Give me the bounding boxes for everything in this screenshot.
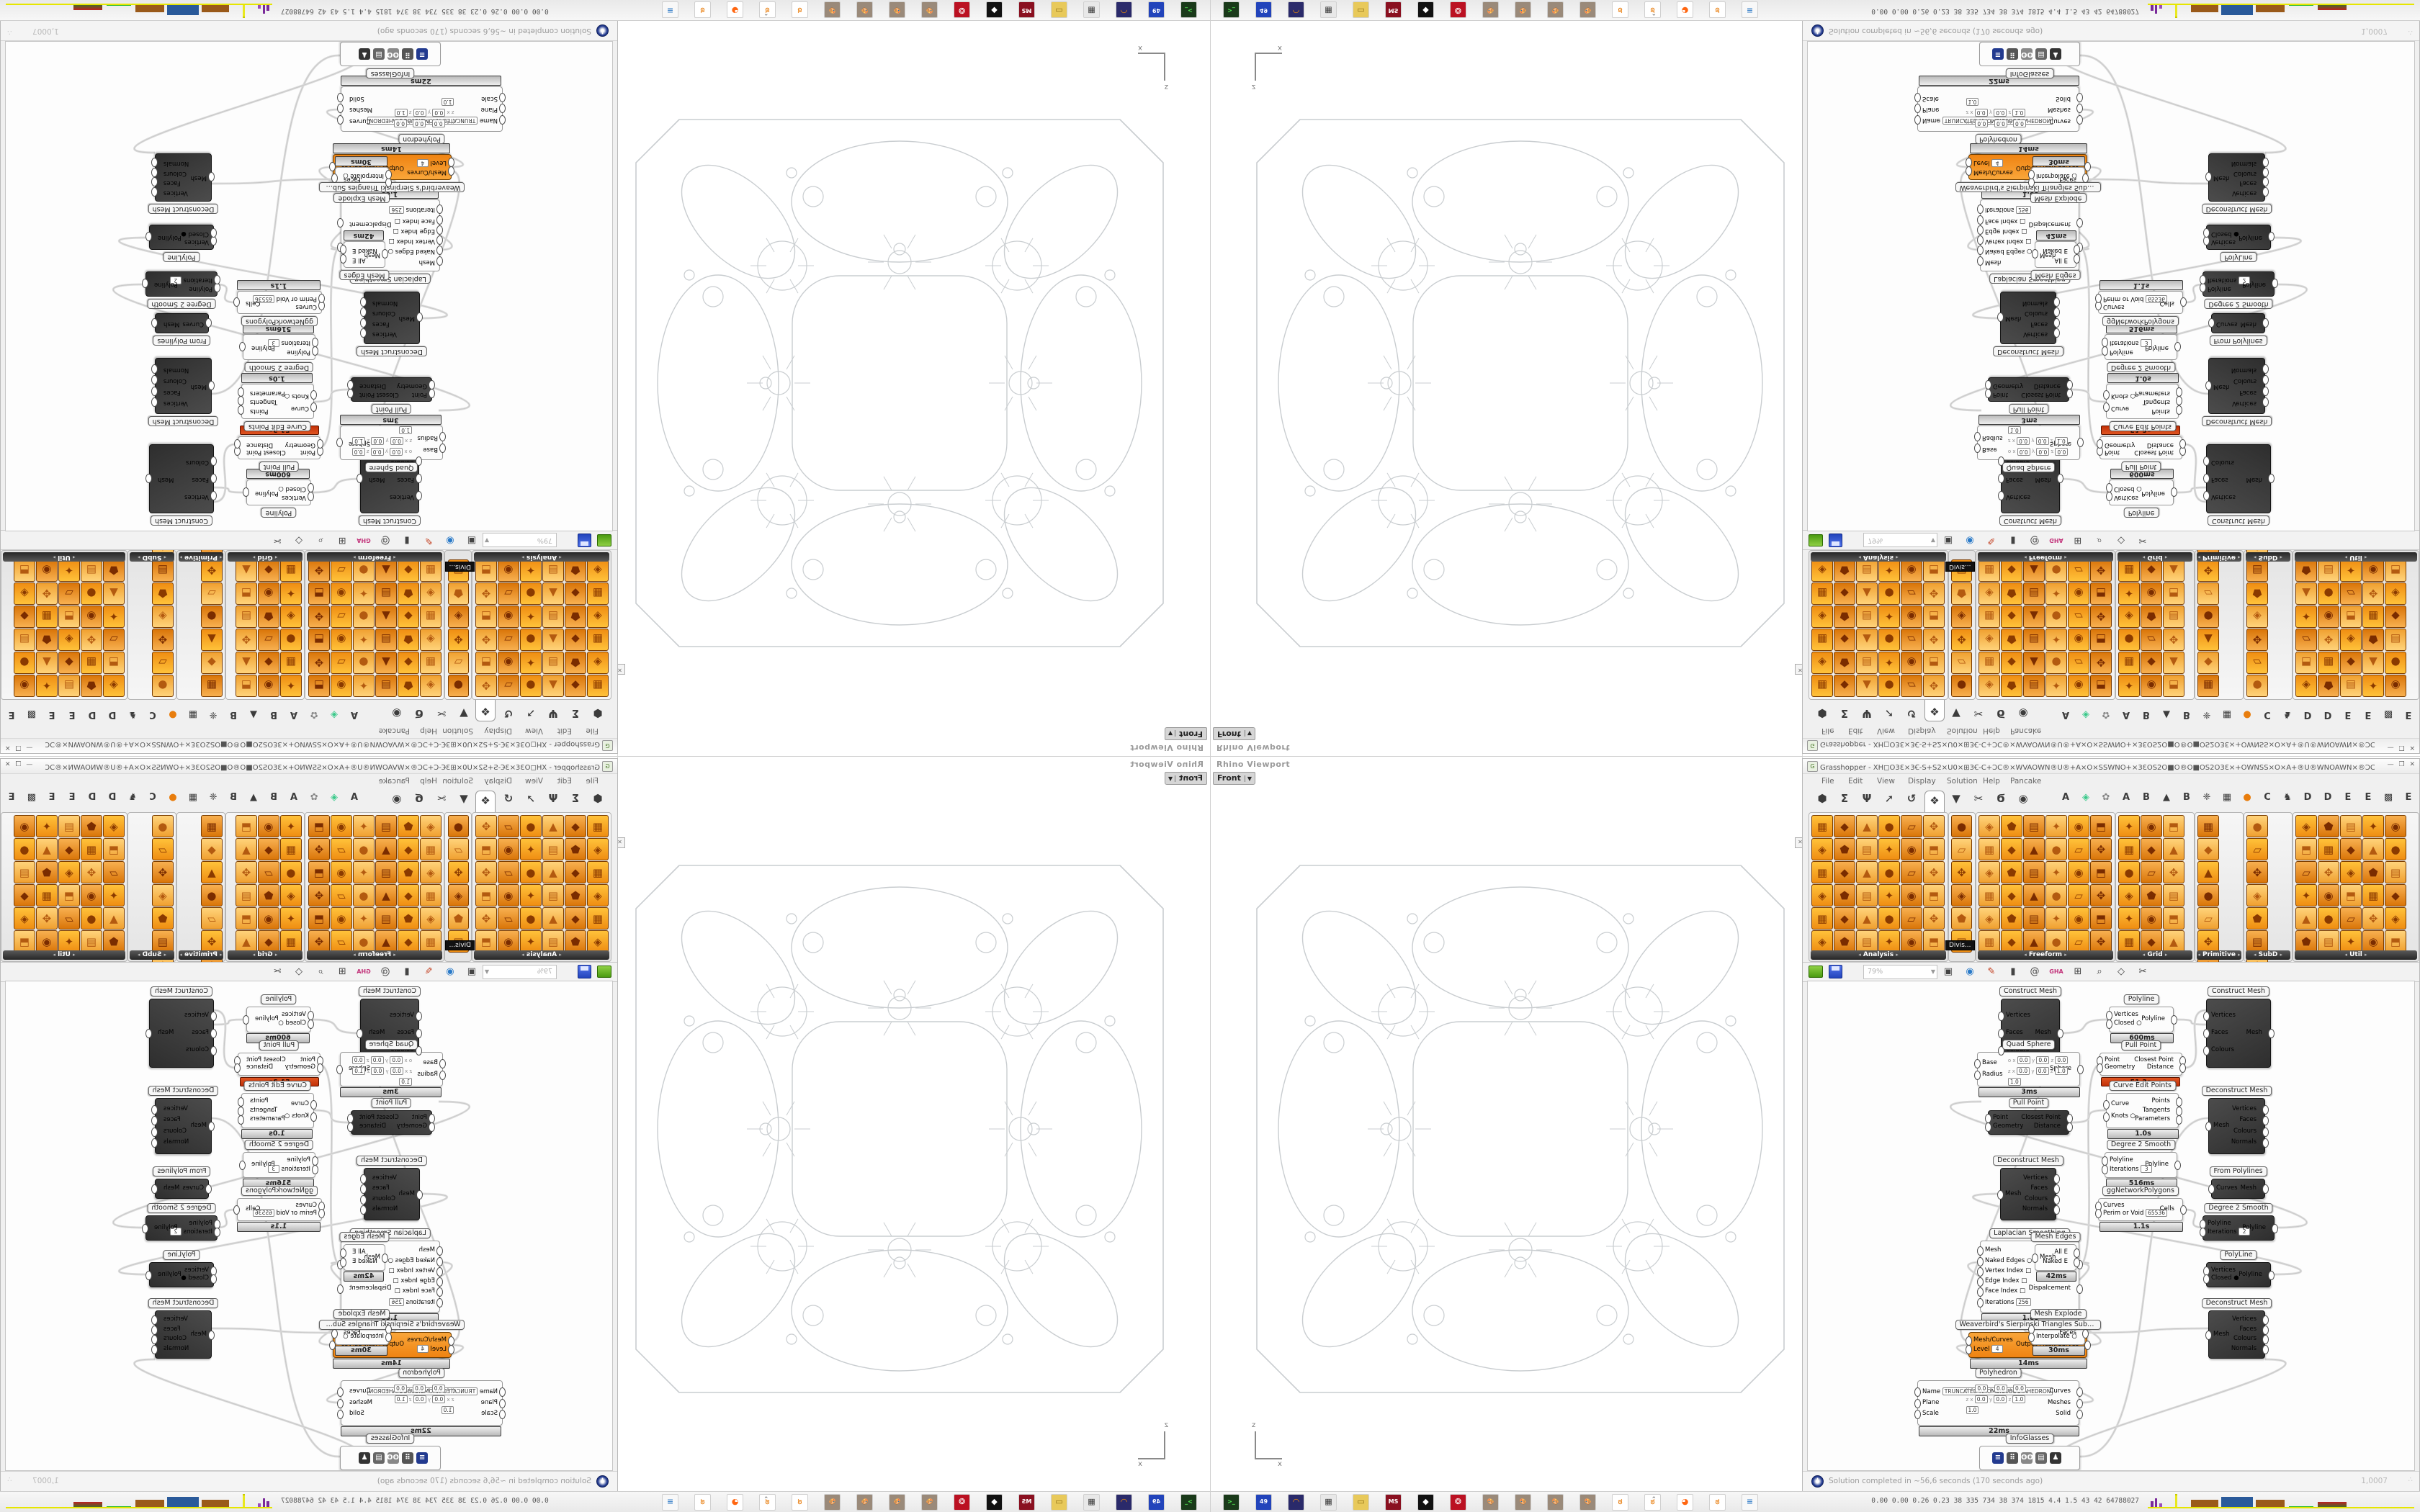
palette-component-icon[interactable]: ◉ xyxy=(2068,629,2089,651)
palette-component-icon[interactable]: ▲ xyxy=(375,606,397,628)
palette-component-icon[interactable]: ⬟ xyxy=(2318,675,2339,697)
menu-item-edit[interactable]: Edit xyxy=(557,777,572,786)
palette-component-icon[interactable]: ◆ xyxy=(565,629,586,651)
palette-component-icon[interactable]: ✥ xyxy=(1923,582,1945,605)
palette-component-icon[interactable]: ▲ xyxy=(201,629,223,651)
palette-component-icon[interactable]: ▦ xyxy=(2318,652,2339,674)
palette-label-primitive[interactable]: ◂ Primitive ▸ xyxy=(2197,950,2241,960)
value-box[interactable]: 0.0 xyxy=(352,448,365,456)
gh-plugin-tab-7[interactable]: ❈ xyxy=(204,792,223,803)
viewport-tab-front[interactable]: Front▼ xyxy=(1165,727,1207,740)
palette-component-icon[interactable]: ◆ xyxy=(2001,884,2022,906)
palette-component-icon[interactable]: ◆ xyxy=(1834,675,1855,697)
palette-component-icon[interactable]: ✥ xyxy=(2090,606,2112,628)
gh-plugin-tab-9[interactable]: ● xyxy=(163,709,182,720)
palette-component-icon[interactable]: ▤ xyxy=(375,675,397,697)
input-port[interactable] xyxy=(312,338,318,347)
infoglasses-icon[interactable]: ≡ xyxy=(1992,48,2004,60)
palette-component-icon[interactable]: ◉ xyxy=(2068,861,2089,883)
gh-plugin-tab-11[interactable]: ♞ xyxy=(2278,709,2297,720)
palette-component-icon[interactable]: ◆ xyxy=(565,861,586,883)
toolbar-icon-0[interactable]: ▣ xyxy=(1941,533,1955,547)
gh-plugin-tab-9[interactable]: ● xyxy=(163,792,182,803)
palette-component-icon[interactable]: ◉ xyxy=(2362,559,2384,582)
input-port[interactable] xyxy=(436,1298,443,1308)
palette-component-icon[interactable]: ✦ xyxy=(1878,838,1900,860)
palette-component-icon[interactable]: ◉ xyxy=(2141,907,2162,930)
palette-component-icon[interactable]: ▱ xyxy=(498,815,519,837)
palette-component-icon[interactable]: ◆ xyxy=(2001,930,2022,953)
canvas-zoom-box[interactable]: 79%▼ xyxy=(1863,533,1937,547)
input-port[interactable] xyxy=(210,491,217,500)
palette-component-icon[interactable]: ✥ xyxy=(2362,907,2384,930)
input-port[interactable] xyxy=(205,318,212,328)
palette-component-icon[interactable]: ● xyxy=(1878,907,1900,930)
gh-main-tab-7[interactable]: ✂ xyxy=(1969,792,1988,805)
palette-component-icon[interactable]: ● xyxy=(353,838,375,860)
input-port[interactable] xyxy=(1998,1029,2004,1038)
palette-component-icon[interactable]: ✥ xyxy=(475,907,497,930)
palette-component-icon[interactable]: ▲ xyxy=(542,815,564,837)
value-box[interactable]: 0.0 xyxy=(2017,1056,2030,1064)
palette-component-icon[interactable]: ⬟ xyxy=(398,861,419,883)
taskbar-icon-blender[interactable]: ಠ xyxy=(694,1,711,18)
palette-component-icon[interactable]: ▲ xyxy=(1856,815,1878,837)
palette-component-icon[interactable]: ✥ xyxy=(448,861,469,883)
palette-component-icon[interactable]: ▱ xyxy=(2246,838,2268,860)
palette-component-icon[interactable]: ✥ xyxy=(152,629,174,651)
palette-component-icon[interactable]: ▦ xyxy=(587,815,609,837)
palette-component-icon[interactable]: ✦ xyxy=(520,838,542,860)
infoglasses-icon[interactable]: ▤ xyxy=(2035,1452,2047,1464)
palette-component-icon[interactable]: ✥ xyxy=(475,675,497,697)
palette-component-icon[interactable]: ▱ xyxy=(2068,652,2089,674)
palette-component-icon[interactable]: ▱ xyxy=(498,629,519,651)
output-port[interactable] xyxy=(2082,1329,2089,1338)
value-box[interactable]: 0.0 xyxy=(432,120,445,127)
palette-component-icon[interactable]: ✦ xyxy=(2118,675,2140,697)
palette-component-icon[interactable]: ◉ xyxy=(2068,582,2089,605)
input-port[interactable] xyxy=(1966,166,1972,176)
palette-component-icon[interactable]: ⬒ xyxy=(475,652,497,674)
gh-plugin-tab-16[interactable]: ▩ xyxy=(22,792,41,803)
palette-component-icon[interactable]: ▦ xyxy=(2118,930,2140,953)
toolbar-icon-8[interactable]: ◇ xyxy=(2114,965,2128,979)
rhino-viewport[interactable]: Rhino Viewport Front▼ z x xyxy=(1210,20,1803,756)
input-port[interactable] xyxy=(208,1122,215,1131)
palette-component-icon[interactable]: ▦ xyxy=(587,629,609,651)
taskbar-icon-floppy-49[interactable]: 49 xyxy=(1255,1494,1272,1511)
output-port[interactable] xyxy=(337,93,344,102)
zoom-dropdown-icon[interactable]: ▼ xyxy=(485,966,489,978)
infoglasses-icon[interactable]: ⠿ xyxy=(2007,48,2018,60)
palette-component-icon[interactable]: ◈ xyxy=(420,675,442,697)
palette-component-icon[interactable]: ▱ xyxy=(1901,629,1922,651)
palette-component-icon[interactable]: ◆ xyxy=(2385,606,2406,628)
grasshopper-title-bar[interactable]: G Grasshopper - XH◻O3Ɛ×3Ꞓ-S+S2×U0×⊞3Ꞓ-C+… xyxy=(1803,738,2419,753)
palette-component-icon[interactable]: ▱ xyxy=(331,930,352,953)
taskbar-icon-terminal[interactable]: >_ xyxy=(1180,1,1197,18)
toolbar-icon-4[interactable]: @ xyxy=(378,533,393,547)
palette-component-icon[interactable]: ▱ xyxy=(1951,838,1972,860)
palette-component-icon[interactable]: ◈ xyxy=(280,884,302,906)
palette-component-icon[interactable]: ◆ xyxy=(1834,907,1855,930)
palette-component-icon[interactable]: ◈ xyxy=(14,907,35,930)
taskbar-icon-floppy-49[interactable]: 49 xyxy=(1148,1,1165,18)
palette-component-icon[interactable]: ▲ xyxy=(2197,629,2219,651)
input-port[interactable] xyxy=(1997,1190,2004,1200)
palette-component-icon[interactable]: ⬒ xyxy=(2340,884,2362,906)
gh-plugin-tab-3[interactable]: A xyxy=(284,709,303,720)
canvas-zoom-box[interactable]: 79%▼ xyxy=(483,965,557,979)
palette-component-icon[interactable]: ◆ xyxy=(2340,838,2362,860)
taskbar-icon-firefox[interactable]: ◕ xyxy=(727,1494,743,1511)
palette-component-icon[interactable]: ▤ xyxy=(375,582,397,605)
taskbar-icon-gimp[interactable]: 🎨 xyxy=(1482,1494,1499,1511)
value-box[interactable]: 0.0 xyxy=(432,1385,445,1392)
value-box[interactable]: 1.0 xyxy=(1966,98,1979,106)
palette-component-icon[interactable]: ⬒ xyxy=(236,582,257,605)
toolbar-icon-2[interactable]: ✎ xyxy=(1984,965,1999,979)
palette-component-icon[interactable]: ◆ xyxy=(398,652,419,674)
input-port[interactable] xyxy=(2203,1029,2210,1038)
palette-component-icon[interactable]: ⬟ xyxy=(448,907,469,930)
gh-main-tab-9[interactable]: ◉ xyxy=(387,792,406,805)
output-port[interactable] xyxy=(145,1271,152,1280)
input-port[interactable] xyxy=(416,1029,422,1038)
palette-component-icon[interactable]: ▤ xyxy=(236,606,257,628)
palette-component-icon[interactable]: ▲ xyxy=(201,861,223,883)
zoom-dropdown-icon[interactable]: ▼ xyxy=(485,534,489,546)
gh-main-tab-9[interactable]: ◉ xyxy=(2014,707,2033,720)
input-port[interactable] xyxy=(1985,389,1991,398)
palette-component-icon[interactable]: ▱ xyxy=(1901,675,1922,697)
palette-component-icon[interactable]: ▲ xyxy=(375,559,397,582)
palette-component-icon[interactable]: ◆ xyxy=(398,884,419,906)
palette-component-icon[interactable]: ▤ xyxy=(2340,815,2362,837)
gh-plugin-tab-14[interactable]: E xyxy=(63,792,81,803)
gh-plugin-tab-3[interactable]: A xyxy=(284,792,303,803)
output-port[interactable] xyxy=(2076,1284,2083,1294)
palette-component-icon[interactable]: ✥ xyxy=(81,629,102,651)
palette-component-icon[interactable]: ▲ xyxy=(1856,907,1878,930)
palette-label-analysis[interactable]: ◂ Analysis ▸ xyxy=(474,552,609,562)
palette-component-icon[interactable]: ✥ xyxy=(201,559,223,582)
gh-plugin-tab-5[interactable]: ▲ xyxy=(2157,709,2176,720)
taskbar-icon-folder[interactable]: ▭ xyxy=(1051,1,1067,18)
taskbar-icon-gimp[interactable]: 🎨 xyxy=(889,1,905,18)
output-port[interactable] xyxy=(2176,405,2182,415)
taskbar-icon-inkscape[interactable]: ◆ xyxy=(1417,1494,1434,1511)
gh-plugin-tab-1[interactable]: ◈ xyxy=(2076,709,2095,720)
menu-item-pancake[interactable]: Pancake xyxy=(2010,726,2041,735)
palette-component-icon[interactable]: ▦ xyxy=(2118,652,2140,674)
input-port[interactable] xyxy=(429,389,435,398)
taskbar-icon-darktable[interactable]: ❂ xyxy=(1450,1494,1466,1511)
viewport-tab-dropdown-icon[interactable]: ▼ xyxy=(1245,775,1252,782)
menu-item-pancake[interactable]: Pancake xyxy=(379,726,410,735)
input-port[interactable] xyxy=(308,492,314,501)
gh-plugin-tab-16[interactable]: ▩ xyxy=(2379,792,2398,803)
taskbar-icon-blender[interactable]: ಠ xyxy=(1709,1,1726,18)
taskbar-icon-firefox[interactable]: ◠ xyxy=(1288,1494,1304,1511)
toolbar-icon-7[interactable]: ⌕ xyxy=(313,533,328,547)
palette-component-icon[interactable]: ◈ xyxy=(2118,884,2140,906)
toolbar-icon-0[interactable]: ▣ xyxy=(465,965,479,979)
gh-main-tab-0[interactable]: ⬢ xyxy=(1813,792,1832,805)
input-port[interactable] xyxy=(416,491,422,500)
palette-component-icon[interactable]: ▦ xyxy=(2318,838,2339,860)
palette-component-icon[interactable]: ▤ xyxy=(152,930,174,953)
palette-component-icon[interactable]: ◉ xyxy=(331,815,352,837)
value-box[interactable]: 0.0 xyxy=(371,1056,384,1064)
palette-component-icon[interactable]: ● xyxy=(1878,629,1900,651)
palette-component-icon[interactable]: ◉ xyxy=(36,930,58,953)
output-port[interactable] xyxy=(233,1205,240,1215)
toolbar-icon-8[interactable]: ◇ xyxy=(292,965,306,979)
palette-component-icon[interactable]: ▦ xyxy=(81,652,102,674)
input-port[interactable] xyxy=(1974,1059,1981,1068)
palette-component-icon[interactable]: ● xyxy=(2045,930,2067,953)
palette-component-icon[interactable]: ⬟ xyxy=(2001,582,2022,605)
palette-component-icon[interactable]: ✥ xyxy=(308,559,330,582)
value-box[interactable]: 0.0 xyxy=(2017,448,2030,456)
output-port[interactable] xyxy=(2057,1029,2063,1038)
input-port[interactable] xyxy=(2097,439,2103,449)
palette-label-grid[interactable]: ◂ Grid ▸ xyxy=(2117,950,2192,960)
palette-component-icon[interactable]: ▦ xyxy=(1811,629,1833,651)
palette-component-icon[interactable]: ◈ xyxy=(1811,884,1833,906)
value-box[interactable]: 0.0 xyxy=(390,448,403,456)
palette-component-icon[interactable]: ⬒ xyxy=(2163,582,2184,605)
infoglasses-icon[interactable]: ≡ xyxy=(1992,1452,2004,1464)
palette-component-icon[interactable]: ✦ xyxy=(2118,907,2140,930)
toolbar-icon-4[interactable]: @ xyxy=(2027,965,2042,979)
palette-component-icon[interactable]: ✦ xyxy=(2045,815,2067,837)
input-port[interactable] xyxy=(208,1331,215,1340)
gh-plugin-tab-5[interactable]: ▲ xyxy=(244,709,263,720)
palette-component-icon[interactable]: ▱ xyxy=(2068,838,2089,860)
palette-component-icon[interactable]: ◆ xyxy=(565,675,586,697)
menu-item-help[interactable]: Help xyxy=(420,726,437,735)
palette-component-icon[interactable]: ◈ xyxy=(1811,652,1833,674)
palette-component-icon[interactable]: ● xyxy=(520,582,542,605)
output-port[interactable] xyxy=(239,342,246,351)
output-port[interactable] xyxy=(151,187,158,197)
palette-component-icon[interactable]: ▤ xyxy=(2023,861,2045,883)
gh-plugin-tab-8[interactable]: ▦ xyxy=(2218,709,2236,720)
gh-plugin-tab-14[interactable]: E xyxy=(2339,792,2357,803)
output-port[interactable] xyxy=(234,439,241,449)
gh-plugin-tab-17[interactable]: E xyxy=(2,792,21,803)
palette-component-icon[interactable]: ▤ xyxy=(542,559,564,582)
menu-item-display[interactable]: Display xyxy=(1908,777,1936,786)
palette-component-icon[interactable]: ▲ xyxy=(103,582,125,605)
gh-plugin-tab-6[interactable]: B xyxy=(2177,792,2196,803)
output-port[interactable] xyxy=(2262,187,2269,197)
palette-component-icon[interactable]: ✥ xyxy=(2362,582,2384,605)
infoglasses-icon[interactable]: ⠿ xyxy=(402,48,413,60)
palette-component-icon[interactable]: ◈ xyxy=(152,884,174,906)
palette-component-icon[interactable]: ▱ xyxy=(2340,907,2362,930)
output-port[interactable] xyxy=(151,168,158,177)
palette-component-icon[interactable]: ▦ xyxy=(420,652,442,674)
palette-component-icon[interactable]: ◆ xyxy=(2001,559,2022,582)
palette-component-icon[interactable]: ▦ xyxy=(1978,559,2000,582)
palette-component-icon[interactable]: ⬒ xyxy=(308,815,330,837)
palette-component-icon[interactable]: ▤ xyxy=(2163,884,2184,906)
menu-item-help[interactable]: Help xyxy=(420,777,437,786)
output-port[interactable] xyxy=(2053,297,2060,307)
palette-component-icon[interactable]: ◉ xyxy=(331,907,352,930)
palette-label-primitive[interactable]: ◂ Primitive ▸ xyxy=(2197,552,2241,562)
palette-component-icon[interactable]: ⬒ xyxy=(2385,930,2406,953)
input-port[interactable] xyxy=(448,166,454,176)
input-port[interactable] xyxy=(499,1387,506,1397)
palette-component-icon[interactable]: ◆ xyxy=(2001,838,2022,860)
value-box[interactable]: 4 xyxy=(1991,159,2003,167)
palette-component-icon[interactable]: ◉ xyxy=(36,559,58,582)
infoglasses-icon[interactable]: ♟ xyxy=(359,48,370,60)
palette-component-icon[interactable]: ◉ xyxy=(331,582,352,605)
value-box[interactable]: 1.0 xyxy=(1966,1406,1979,1414)
palette-component-icon[interactable]: ✥ xyxy=(152,861,174,883)
output-port[interactable] xyxy=(2053,1195,2060,1205)
palette-component-icon[interactable]: ▦ xyxy=(280,838,302,860)
gh-plugin-tab-10[interactable]: C xyxy=(143,792,162,803)
save-file-icon[interactable] xyxy=(578,534,591,547)
gh-main-tab-8[interactable]: Ϭ xyxy=(410,792,429,805)
palette-component-icon[interactable]: ⬟ xyxy=(565,652,586,674)
palette-component-icon[interactable]: ◈ xyxy=(587,884,609,906)
gh-plugin-tab-12[interactable]: D xyxy=(103,792,122,803)
palette-component-icon[interactable]: ▤ xyxy=(2385,629,2406,651)
palette-component-icon[interactable]: ● xyxy=(1878,861,1900,883)
output-port[interactable] xyxy=(2077,1065,2084,1074)
palette-component-icon[interactable]: ▱ xyxy=(152,838,174,860)
input-port[interactable] xyxy=(312,1165,318,1174)
palette-component-icon[interactable]: ✦ xyxy=(520,884,542,906)
palette-component-icon[interactable]: ◉ xyxy=(2068,815,2089,837)
palette-component-icon[interactable]: ◉ xyxy=(81,606,102,628)
palette-component-icon[interactable]: ◈ xyxy=(420,582,442,605)
palette-component-icon[interactable]: ▤ xyxy=(375,629,397,651)
palette-component-icon[interactable]: ◆ xyxy=(14,606,35,628)
toolbar-icon-7[interactable]: ⌕ xyxy=(2092,965,2107,979)
taskbar-icon-inkscape[interactable]: ◆ xyxy=(1417,1,1434,18)
palette-component-icon[interactable]: ▲ xyxy=(2362,652,2384,674)
input-port[interactable] xyxy=(436,1257,443,1266)
output-port[interactable] xyxy=(2262,1105,2269,1115)
palette-component-icon[interactable]: ◉ xyxy=(2318,606,2339,628)
palette-component-icon[interactable]: ▱ xyxy=(498,675,519,697)
palette-component-icon[interactable]: ⬟ xyxy=(258,606,279,628)
toolbar-icon-7[interactable]: ⌕ xyxy=(313,965,328,979)
palette-component-icon[interactable]: ⬟ xyxy=(1951,582,1972,605)
palette-component-icon[interactable]: ● xyxy=(201,884,223,906)
menu-item-edit[interactable]: Edit xyxy=(557,726,572,735)
value-box[interactable]: 0.0 xyxy=(394,1385,407,1392)
palette-component-icon[interactable]: ✦ xyxy=(2045,861,2067,883)
output-port[interactable] xyxy=(357,1029,363,1038)
input-port[interactable] xyxy=(1977,225,1984,235)
palette-component-icon[interactable]: ● xyxy=(201,606,223,628)
value-box[interactable]: 0.0 xyxy=(1975,1395,1988,1403)
resize-grip[interactable]: ∴ xyxy=(2408,28,2414,36)
value-box[interactable]: 0.0 xyxy=(1975,120,1988,127)
palette-component-icon[interactable]: ◈ xyxy=(1951,884,1972,906)
value-box[interactable]: 1.0 xyxy=(2012,109,2025,117)
palette-component-icon[interactable]: ● xyxy=(520,675,542,697)
palette-component-icon[interactable]: ◉ xyxy=(258,582,279,605)
value-box[interactable]: 0.0 xyxy=(371,1067,384,1075)
palette-component-icon[interactable]: ✥ xyxy=(1951,629,1972,651)
palette-label-analysis[interactable]: ◂ Analysis ▸ xyxy=(1811,950,1946,960)
gh-plugin-tab-13[interactable]: D xyxy=(83,792,102,803)
palette-component-icon[interactable]: ▤ xyxy=(2385,861,2406,883)
output-port[interactable] xyxy=(2084,1341,2091,1350)
palette-component-icon[interactable]: ● xyxy=(1951,675,1972,697)
palette-component-icon[interactable]: ▲ xyxy=(2362,838,2384,860)
palette-component-icon[interactable]: ✥ xyxy=(2246,629,2268,651)
value-box[interactable]: 4 xyxy=(1991,1345,2003,1353)
palette-component-icon[interactable]: ◆ xyxy=(58,838,80,860)
palette-component-icon[interactable]: ● xyxy=(520,629,542,651)
palette-component-icon[interactable]: ◉ xyxy=(498,652,519,674)
palette-component-icon[interactable]: ✥ xyxy=(475,861,497,883)
output-port[interactable] xyxy=(340,1258,346,1267)
palette-component-icon[interactable]: ✥ xyxy=(201,930,223,953)
input-port[interactable] xyxy=(448,1345,454,1354)
menu-item-display[interactable]: Display xyxy=(1908,726,1936,735)
input-port[interactable] xyxy=(1914,93,1921,102)
palette-component-icon[interactable]: ▤ xyxy=(2318,559,2339,582)
palette-component-icon[interactable]: ✦ xyxy=(2118,582,2140,605)
gh-main-tab-7[interactable]: ✂ xyxy=(1969,707,1988,720)
palette-component-icon[interactable]: ● xyxy=(520,815,542,837)
palette-component-icon[interactable]: ▤ xyxy=(375,907,397,930)
value-box[interactable]: 1.0 xyxy=(442,1406,454,1414)
gh-main-tab-8[interactable]: Ϭ xyxy=(1991,792,2010,805)
taskbar-icon-calculator[interactable]: ▦ xyxy=(1083,1,1100,18)
value-box[interactable]: 0.0 xyxy=(413,1395,426,1403)
palette-component-icon[interactable]: ⬒ xyxy=(475,838,497,860)
taskbar-icon-gimp[interactable]: 🎨 xyxy=(921,1494,938,1511)
gh-main-tab-9[interactable]: ◉ xyxy=(387,707,406,720)
value-box[interactable]: 0.0 xyxy=(2036,1056,2049,1064)
palette-component-icon[interactable]: ▱ xyxy=(1901,861,1922,883)
value-box[interactable]: 1.0 xyxy=(399,1078,412,1086)
palette-component-icon[interactable]: ⬟ xyxy=(398,907,419,930)
palette-component-icon[interactable]: ▤ xyxy=(2023,675,2045,697)
gh-main-tab-2[interactable]: Ψ xyxy=(544,707,563,720)
input-port[interactable] xyxy=(2205,1122,2212,1131)
output-port[interactable] xyxy=(2066,1122,2073,1132)
input-port[interactable] xyxy=(2203,456,2210,466)
palette-component-icon[interactable]: ⬒ xyxy=(14,559,35,582)
palette-component-icon[interactable]: ✥ xyxy=(475,629,497,651)
value-box[interactable]: 0.0 xyxy=(413,120,426,127)
toolbar-icon-1[interactable]: ◉ xyxy=(1963,965,1977,979)
value-box[interactable]: 0.0 xyxy=(390,1067,403,1075)
palette-component-icon[interactable]: ✥ xyxy=(2090,884,2112,906)
window-controls[interactable]: — ❒ ✕ xyxy=(2388,761,2416,768)
palette-component-icon[interactable]: ▲ xyxy=(1856,629,1878,651)
gh-main-tab-4[interactable]: ↺ xyxy=(1902,792,1921,805)
palette-component-icon[interactable]: ● xyxy=(14,838,35,860)
taskbar-icon-firefox[interactable]: ◕ xyxy=(1677,1494,1693,1511)
gh-plugin-tab-4[interactable]: B xyxy=(264,792,283,803)
